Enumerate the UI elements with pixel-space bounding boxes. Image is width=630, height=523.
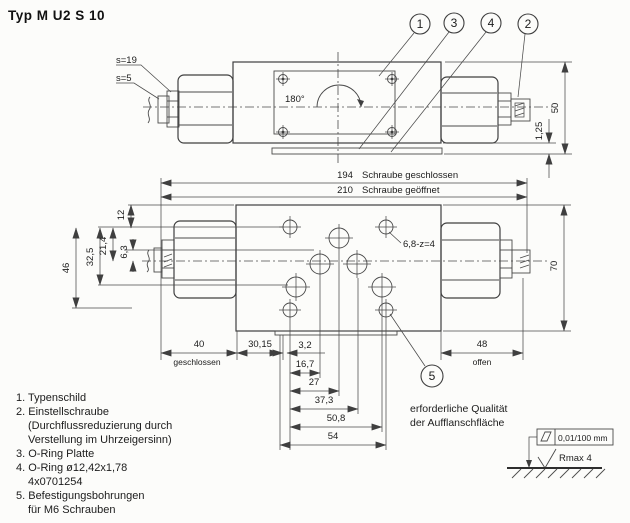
roughness-check-icon bbox=[538, 449, 556, 468]
roughness-spec: Rmax 4 bbox=[559, 453, 592, 464]
valve-body-footprint bbox=[236, 205, 441, 331]
note-line: (Durchflussreduzierung durch bbox=[28, 420, 172, 432]
dim-3-2: 3,2 bbox=[269, 340, 325, 353]
left-locknut-assembly bbox=[158, 75, 233, 143]
svg-text:40: 40 bbox=[194, 339, 205, 350]
balloon-4: 4 bbox=[481, 13, 501, 33]
dim-46: 46 bbox=[61, 228, 76, 308]
flatness-icon bbox=[541, 432, 551, 441]
technical-drawing: 180° s=19 s=5 bbox=[0, 0, 630, 523]
svg-text:50,8: 50,8 bbox=[327, 413, 346, 424]
dim-70: 70 bbox=[549, 205, 564, 331]
svg-text:46: 46 bbox=[61, 263, 72, 274]
note-line: 4. O-Ring ø12,42x1,78 bbox=[16, 462, 127, 474]
dim-27: 27 bbox=[290, 377, 339, 391]
svg-text:6,3: 6,3 bbox=[119, 245, 130, 258]
svg-text:16,7: 16,7 bbox=[296, 359, 315, 370]
surface-quality-note: erforderliche Qualität der Aufflanschflä… bbox=[410, 403, 613, 478]
svg-text:194: 194 bbox=[337, 170, 353, 181]
svg-text:48: 48 bbox=[477, 339, 488, 350]
svg-text:5: 5 bbox=[429, 369, 436, 383]
oring-plate-edge bbox=[272, 148, 442, 154]
dim-48-offen: 48 offen bbox=[441, 339, 523, 367]
dim-32-5: 32,5 bbox=[85, 228, 100, 285]
oring-plate-tab bbox=[275, 331, 397, 335]
note-line: für M6 Schrauben bbox=[28, 504, 115, 516]
leader-arrowhead-icon bbox=[526, 460, 532, 468]
dim-16-7: 16,7 bbox=[290, 359, 320, 373]
valve-body-side bbox=[233, 62, 441, 143]
note-line: 4x0701254 bbox=[28, 476, 82, 488]
note-line: Verstellung im Uhrzeigersinn) bbox=[28, 434, 172, 446]
quality-text-line1: erforderliche Qualität bbox=[410, 403, 508, 415]
note-line: 2. Einstellschraube bbox=[16, 406, 109, 418]
dim-6-3: 6,3 bbox=[119, 239, 133, 272]
svg-text:4: 4 bbox=[488, 16, 495, 30]
balloon-1-leader bbox=[379, 33, 414, 76]
note-line: 3. O-Ring Platte bbox=[16, 448, 94, 460]
svg-text:1: 1 bbox=[417, 17, 424, 31]
svg-text:Schraube geöffnet: Schraube geöffnet bbox=[362, 185, 440, 196]
dim-194-closed: 194 Schraube geschlossen bbox=[161, 170, 527, 183]
note-line: 1. Typenschild bbox=[16, 392, 86, 404]
dim-40-geschlossen: 40 geschlossen bbox=[161, 339, 237, 367]
mounting-hole-callout: 6,8-z=4 bbox=[389, 232, 435, 250]
svg-text:3: 3 bbox=[451, 16, 458, 30]
balloon-2: 2 bbox=[518, 14, 538, 34]
svg-text:12: 12 bbox=[116, 210, 127, 221]
dim-12: 12 bbox=[116, 205, 131, 228]
rotation-arc bbox=[317, 85, 361, 107]
svg-text:2: 2 bbox=[525, 17, 532, 31]
svg-text:Schraube geschlossen: Schraube geschlossen bbox=[362, 170, 458, 181]
arc-arrowhead-icon bbox=[357, 99, 364, 107]
svg-text:6,8-z=4: 6,8-z=4 bbox=[403, 239, 435, 250]
svg-text:70: 70 bbox=[549, 261, 560, 272]
svg-text:210: 210 bbox=[337, 185, 353, 196]
plate-screw-icon bbox=[385, 72, 399, 86]
plate-screw-icon bbox=[385, 125, 399, 139]
knurl-icon bbox=[520, 255, 529, 268]
balloon-5-leader bbox=[390, 314, 425, 366]
balloon-5: 5 bbox=[421, 365, 443, 387]
dim-210-open: 210 Schraube geöffnet bbox=[161, 185, 527, 197]
svg-text:21,4: 21,4 bbox=[98, 237, 109, 256]
adjustment-screw-assembly bbox=[441, 77, 530, 143]
svg-text:54: 54 bbox=[328, 431, 339, 442]
plate-screw-icon bbox=[276, 125, 290, 139]
wrench-size-5-label: s=5 bbox=[116, 73, 132, 84]
break-symbol bbox=[148, 97, 150, 123]
svg-text:offen: offen bbox=[473, 357, 492, 367]
dim-54: 54 bbox=[280, 431, 386, 445]
parts-notes: 1. Typenschild 2. Einstellschraube (Durc… bbox=[16, 392, 172, 516]
balloon-1: 1 bbox=[410, 14, 430, 34]
wrench-size-19-label: s=19 bbox=[116, 55, 137, 66]
top-view: 180° s=19 s=5 bbox=[116, 13, 572, 178]
mounting-holes bbox=[279, 216, 397, 321]
dim-50: 50 bbox=[444, 62, 572, 154]
balloon-3-leader bbox=[359, 32, 449, 149]
note-line: 5. Befestigungsbohrungen bbox=[16, 490, 144, 502]
svg-text:50: 50 bbox=[550, 103, 561, 114]
svg-text:32,5: 32,5 bbox=[85, 248, 96, 267]
dim-1-25: 1,25 bbox=[443, 119, 556, 178]
surface-hatching bbox=[512, 469, 605, 478]
svg-text:37,3: 37,3 bbox=[315, 395, 334, 406]
plate-screw-icon bbox=[276, 72, 290, 86]
knurl-icon bbox=[515, 103, 524, 117]
thread-hatch-icon bbox=[164, 254, 172, 267]
svg-text:30,15: 30,15 bbox=[248, 339, 272, 350]
nameplate: 180° bbox=[274, 71, 399, 139]
drawing-page: Typ M U2 S 10 bbox=[0, 0, 630, 523]
balloon-2-leader bbox=[518, 34, 525, 97]
dim-30-15: 30,15 bbox=[237, 339, 283, 353]
flatness-spec: 0,01/100 mm bbox=[558, 433, 608, 443]
svg-text:27: 27 bbox=[309, 377, 320, 388]
quality-text-line2: der Aufflanschfläche bbox=[410, 417, 505, 429]
svg-text:1,25: 1,25 bbox=[534, 122, 545, 141]
left-locknut-assembly bbox=[154, 221, 236, 298]
dim-50-8: 50,8 bbox=[290, 413, 382, 427]
rotation-angle-label: 180° bbox=[285, 94, 305, 105]
balloon-4-leader bbox=[391, 32, 486, 152]
right-adjuster-assembly bbox=[441, 223, 530, 298]
balloon-3: 3 bbox=[444, 13, 464, 33]
flatness-leader bbox=[529, 437, 537, 461]
s5-leader bbox=[116, 83, 159, 99]
dim-37-3: 37,3 bbox=[290, 395, 358, 409]
svg-text:geschlossen: geschlossen bbox=[173, 357, 221, 367]
svg-text:3,2: 3,2 bbox=[298, 340, 311, 351]
